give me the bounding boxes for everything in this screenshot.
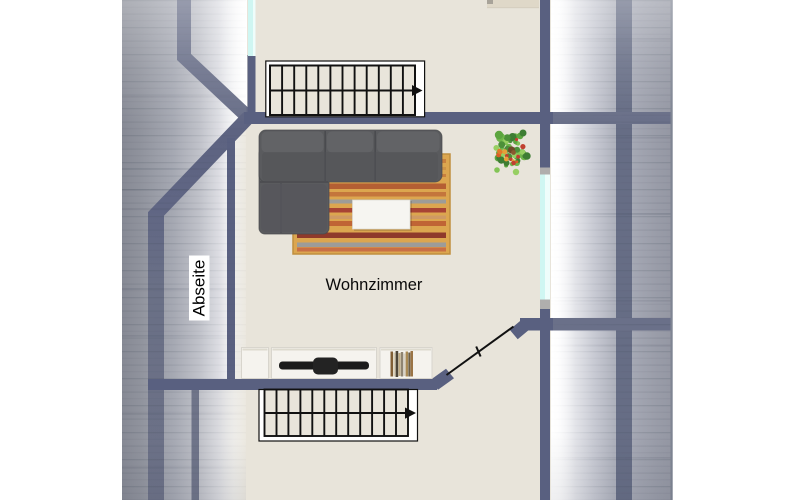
svg-text:Wohnzimmer: Wohnzimmer <box>326 276 423 294</box>
svg-text:Abseite: Abseite <box>190 260 209 317</box>
